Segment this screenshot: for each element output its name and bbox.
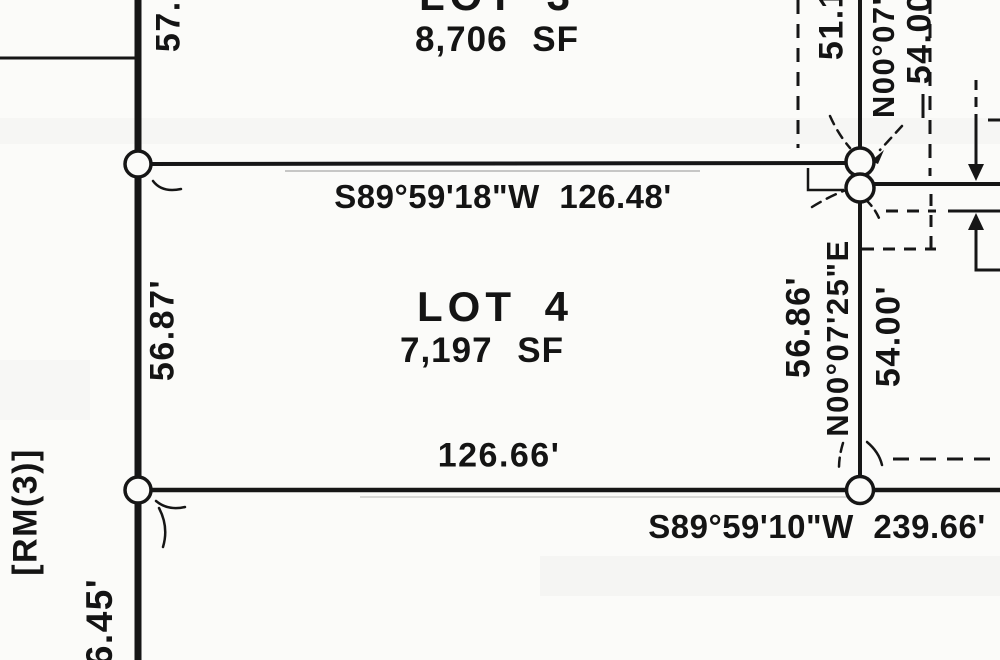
dimension-arrow-down	[968, 164, 984, 181]
lot4-area: 7,197 SF	[400, 331, 564, 371]
tie-mark	[156, 501, 185, 508]
tie-mark	[866, 200, 881, 223]
north-lot-line	[150, 163, 849, 164]
tie-mark-leader	[880, 126, 902, 150]
tie-mark	[159, 508, 165, 547]
lot4-label: LOT 4	[417, 283, 573, 331]
easement-elbow	[808, 168, 844, 190]
lot3-area: 8,706 SF	[415, 20, 579, 60]
tie-mark	[830, 116, 850, 148]
west-dim-6-45-partial: 6.45'	[79, 578, 121, 660]
south-boundary-bearing: S89°59'10"W 239.66'	[648, 508, 985, 546]
plat-map: LOT 3 8,706 SF S89°59'18"W 126.48' LOT 4…	[0, 0, 1000, 660]
tie-mark	[867, 442, 882, 465]
north-boundary-bearing: S89°59'18"W 126.48'	[334, 178, 671, 216]
monument-circle-sw	[125, 477, 151, 503]
rm3-reference: [RM(3)]	[7, 448, 46, 576]
east-dim-56-86: 56.86'	[780, 276, 819, 378]
west-dim-57-partial: 57.0	[150, 0, 189, 52]
tie-mark	[153, 181, 181, 190]
east-dim-51-1-partial: 51.1	[813, 0, 852, 60]
east-dim-54-partial: 54.00	[901, 0, 940, 84]
monument-circle-nw	[125, 151, 151, 177]
east-bearing-partial: N00°07'2	[866, 0, 902, 118]
south-segment-dimension: 126.66'	[438, 437, 561, 476]
monument-circle-ne-lower	[846, 174, 874, 202]
lot3-label: LOT 3	[419, 0, 575, 20]
dimension-arrow-up-shaft	[976, 229, 1000, 270]
tie-mark	[839, 443, 843, 468]
tie-mark	[812, 190, 846, 207]
monument-circle-se	[847, 477, 874, 504]
monument-circle-ne-upper	[846, 148, 874, 176]
east-dim-54-00: 54.00'	[870, 285, 909, 387]
dimension-arrow-up	[968, 213, 984, 230]
east-bearing-n00-07-25: N00°07'25"E	[820, 239, 856, 436]
west-dim-56-87: 56.87'	[144, 279, 183, 381]
